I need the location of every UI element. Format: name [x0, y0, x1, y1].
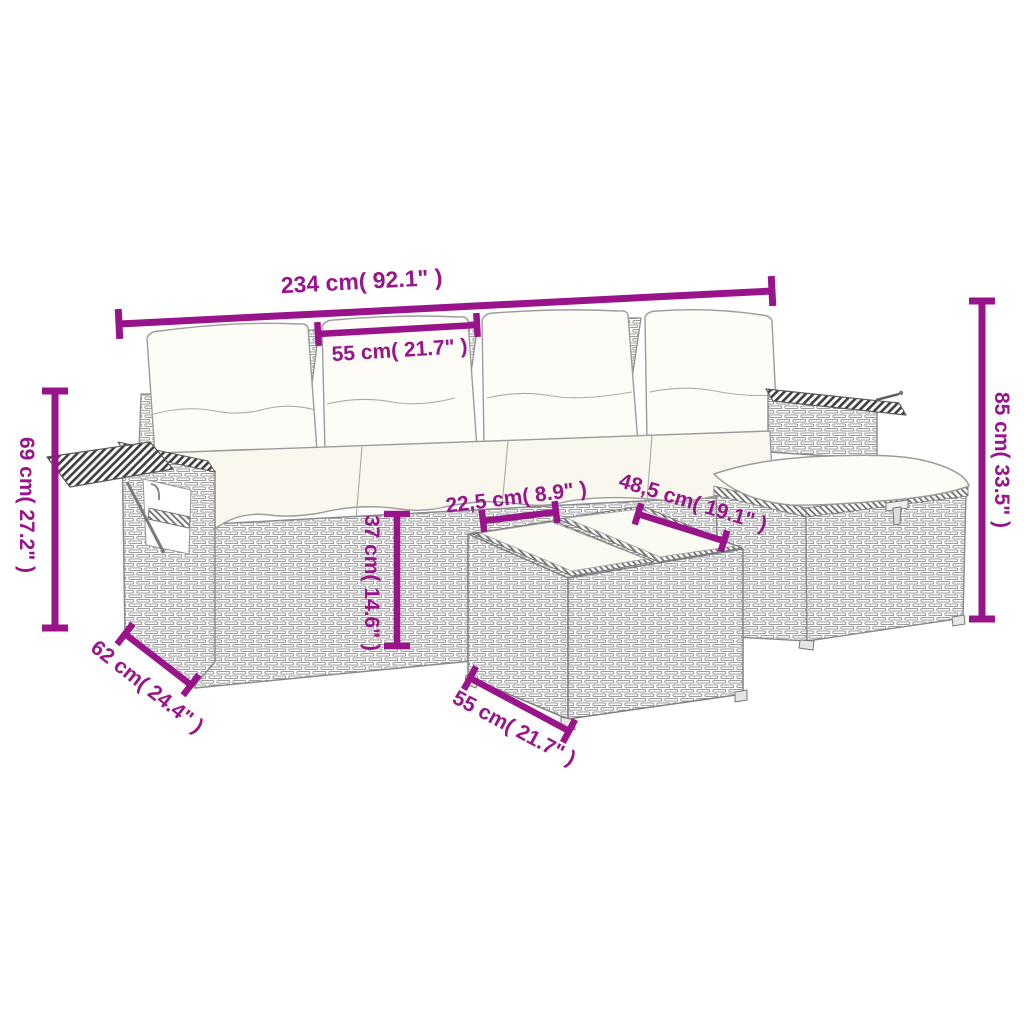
back-cushion — [645, 310, 778, 445]
dimension-tick-start — [482, 510, 485, 532]
ottoman-right-face — [806, 493, 966, 641]
dimension-tick-end — [771, 276, 773, 306]
storage-ottoman — [714, 455, 969, 650]
dimension-label-left-table-height: 69 cm( 27.2" ) — [15, 437, 38, 573]
dimension-tick-start — [118, 309, 120, 339]
flap-latch-stick — [876, 394, 899, 400]
dimension-left-table-height: 69 cm( 27.2" ) — [15, 391, 68, 628]
dimension-label-overall-width: 234 cm( 92.1" ) — [280, 264, 443, 298]
right-armrest — [766, 389, 906, 459]
dimension-tick-start — [317, 322, 318, 346]
dimension-label-seat-height: 37 cm( 14.6" ) — [360, 515, 383, 651]
table-right-face — [568, 549, 743, 719]
garden-sofa-set-drawing: 234 cm( 92.1" )55 cm( 21.7" )69 cm( 27.2… — [0, 0, 1024, 1024]
dimension-label-back-height: 85 cm( 33.5" ) — [990, 392, 1013, 528]
dimension-back-height: 85 cm( 33.5" ) — [969, 301, 1013, 619]
left-armrest-face — [122, 443, 215, 687]
dimension-tick-end — [476, 313, 477, 337]
product-dimension-diagram: 234 cm( 92.1" )55 cm( 21.7" )69 cm( 27.2… — [0, 0, 1024, 1024]
back-cushion — [482, 310, 638, 446]
back-cushions — [147, 310, 778, 455]
back-cushion — [147, 323, 317, 455]
left-armrest — [47, 442, 215, 687]
flap-latch-knob — [899, 391, 903, 395]
